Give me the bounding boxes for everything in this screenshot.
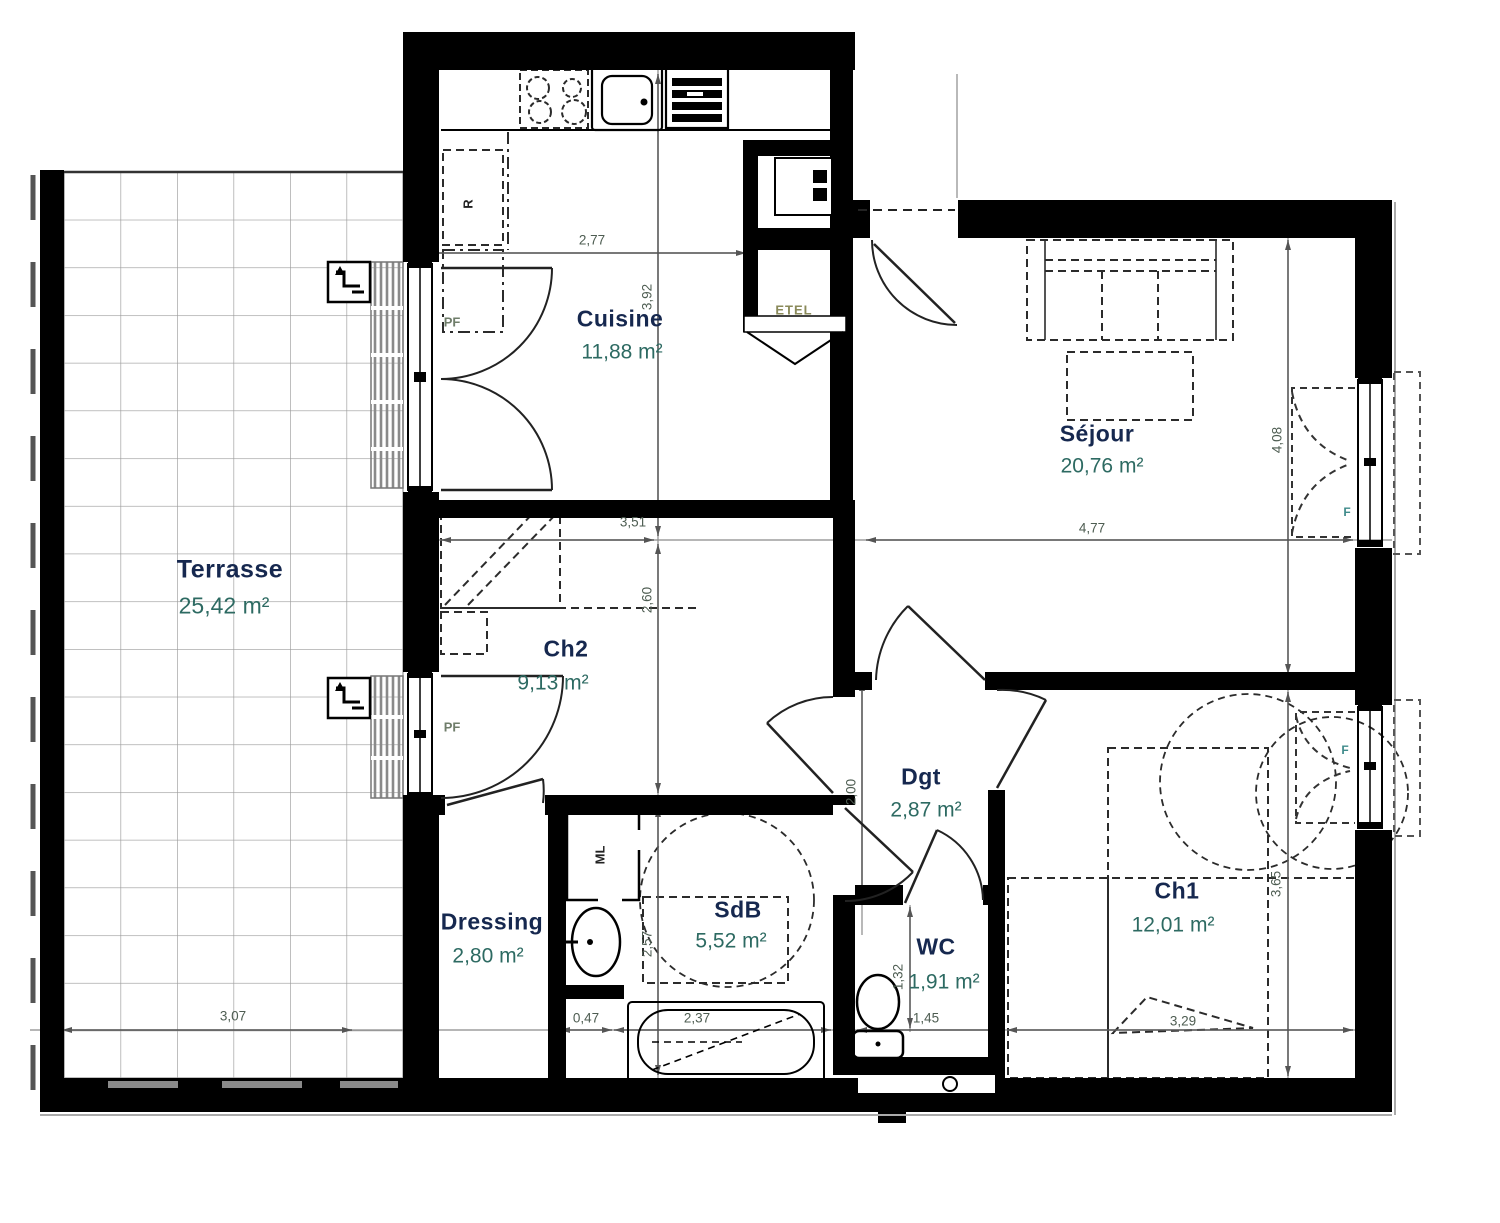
- dim-bath-width: 2,37: [684, 1011, 710, 1025]
- dim-cuisine-width: 2,77: [579, 233, 605, 247]
- room-label-dgt: Dgt: [901, 766, 941, 789]
- dim-sejour-width: 4,77: [1079, 521, 1105, 535]
- furniture-sejour: [1027, 240, 1233, 420]
- label-washing-machine: ML: [594, 846, 607, 865]
- dim-sdb-height: 2,57: [640, 931, 654, 957]
- dim-dgt-height: 2,00: [844, 779, 858, 805]
- door-ch1: [997, 690, 1046, 788]
- decking-strip-kitchen: [371, 262, 403, 488]
- room-area: 2,80 m²: [452, 946, 523, 967]
- dim-ch2-height: 2,60: [640, 587, 654, 613]
- window-sejour: [1292, 372, 1420, 554]
- terrace: [33, 172, 403, 1110]
- dim-terrasse-width: 3,07: [220, 1009, 246, 1023]
- fridge-outline: [443, 132, 508, 332]
- entry-door: [858, 210, 957, 325]
- label-fridge: R: [462, 199, 475, 208]
- door-ch2: [767, 697, 833, 793]
- room-label-wc: WC: [916, 936, 955, 959]
- decking-strip-bedroom: [371, 676, 403, 798]
- room-label-cuisine: Cuisine: [577, 308, 664, 331]
- dish-drainer: [666, 68, 728, 128]
- outdoor-tap-icon: [328, 678, 370, 718]
- room-area: 12,01 m²: [1132, 915, 1215, 936]
- dim-ch1-height: 3,65: [1269, 871, 1283, 897]
- washbasin: [566, 908, 620, 976]
- room-area: 5,52 m²: [695, 931, 766, 952]
- room-area: 9,13 m²: [517, 673, 588, 694]
- hob-outline: [520, 70, 588, 128]
- furniture-ch2: [441, 505, 700, 654]
- room-label-ch2: Ch2: [544, 638, 589, 661]
- dim-wc-width: 1,45: [913, 1011, 939, 1025]
- label-window: F: [1343, 506, 1350, 518]
- label-french-door: PF: [444, 316, 461, 329]
- room-area: 1,91 m²: [908, 972, 979, 993]
- dim-wc-height: 1,32: [891, 964, 905, 990]
- dim-cuisine-height: 3,92: [640, 284, 654, 310]
- room-label-terrasse: Terrasse: [177, 558, 283, 583]
- room-area: 2,87 m²: [890, 800, 961, 821]
- dim-ch2-width: 3,51: [620, 515, 646, 529]
- floor-plan: Terrasse 25,42 m² Cuisine 11,88 m² Séjou…: [0, 0, 1500, 1223]
- door-dressing: [447, 779, 544, 805]
- dim-sejour-height: 4,08: [1270, 427, 1284, 453]
- door-sejour-dgt: [876, 606, 985, 680]
- room-label-dressing: Dressing: [441, 911, 543, 934]
- label-french-door: PF: [444, 721, 461, 734]
- room-area: 20,76 m²: [1061, 456, 1144, 477]
- door-wc: [905, 830, 983, 903]
- room-label-ch1: Ch1: [1155, 880, 1200, 903]
- outdoor-tap-icon: [328, 262, 370, 302]
- sink: [592, 66, 662, 130]
- dim-ch1-width: 3,29: [1170, 1014, 1196, 1028]
- pf-frame-ch2: [408, 672, 432, 798]
- kitchen-counter: [441, 66, 830, 130]
- label-window: F: [1341, 744, 1348, 756]
- window-ch1: [1296, 700, 1420, 836]
- pf-frame-cuisine: [408, 262, 432, 492]
- label-tech-closet: ETEL: [775, 304, 812, 317]
- room-name: Terrasse: [177, 558, 283, 583]
- french-door-cuisine: [441, 268, 552, 490]
- dim-basin-nook-width: 0,47: [573, 1011, 599, 1025]
- room-area: 11,88 m²: [581, 342, 662, 363]
- room-area: 25,42 m²: [179, 595, 270, 618]
- room-label-sejour: Séjour: [1060, 423, 1135, 446]
- room-label-sdb: SdB: [714, 899, 762, 922]
